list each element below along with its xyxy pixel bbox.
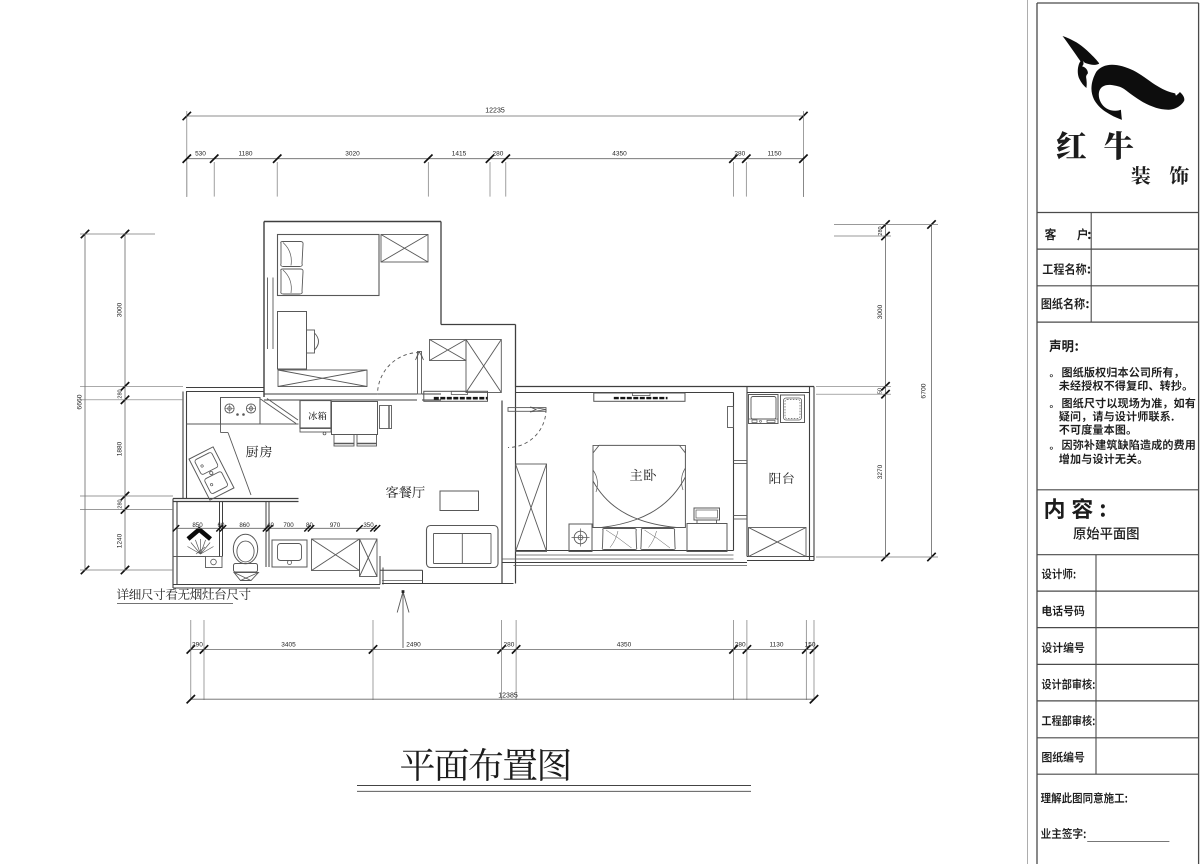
svg-text:6700: 6700 <box>921 383 928 398</box>
svg-text:280: 280 <box>492 151 503 158</box>
svg-text:860: 860 <box>239 522 250 529</box>
svg-text:350: 350 <box>363 522 374 529</box>
svg-text:80: 80 <box>306 522 313 529</box>
svg-text:40: 40 <box>267 522 274 529</box>
svg-text:970: 970 <box>330 522 341 529</box>
svg-text:3405: 3405 <box>281 641 296 648</box>
svg-text:1130: 1130 <box>770 641 784 648</box>
svg-text:3270: 3270 <box>877 464 884 479</box>
svg-text:3020: 3020 <box>345 151 360 158</box>
svg-text:60: 60 <box>218 522 225 529</box>
svg-text:50: 50 <box>878 388 884 394</box>
svg-text:530: 530 <box>195 151 206 158</box>
svg-text:280: 280 <box>878 226 884 235</box>
svg-text:3000: 3000 <box>877 304 884 319</box>
svg-text:1880: 1880 <box>117 441 124 456</box>
svg-text:280: 280 <box>503 641 514 648</box>
svg-text:4350: 4350 <box>612 151 627 158</box>
svg-text:290: 290 <box>192 641 203 648</box>
svg-text:280: 280 <box>734 151 745 158</box>
svg-text:1180: 1180 <box>239 151 253 158</box>
svg-text:12235: 12235 <box>485 108 505 115</box>
svg-text:280: 280 <box>735 641 746 648</box>
svg-text:1150: 1150 <box>768 151 782 158</box>
svg-text:12385: 12385 <box>498 692 518 699</box>
svg-text:6660: 6660 <box>77 394 84 409</box>
svg-text:280: 280 <box>118 389 124 398</box>
svg-text:1240: 1240 <box>117 533 124 548</box>
svg-text:4350: 4350 <box>617 641 632 648</box>
svg-text:700: 700 <box>283 522 294 529</box>
svg-text:280: 280 <box>118 499 124 508</box>
svg-text:850: 850 <box>192 522 203 529</box>
svg-text:3000: 3000 <box>117 302 124 317</box>
svg-text:1415: 1415 <box>452 151 467 158</box>
svg-text:2490: 2490 <box>406 641 421 648</box>
svg-text:150: 150 <box>805 641 816 648</box>
